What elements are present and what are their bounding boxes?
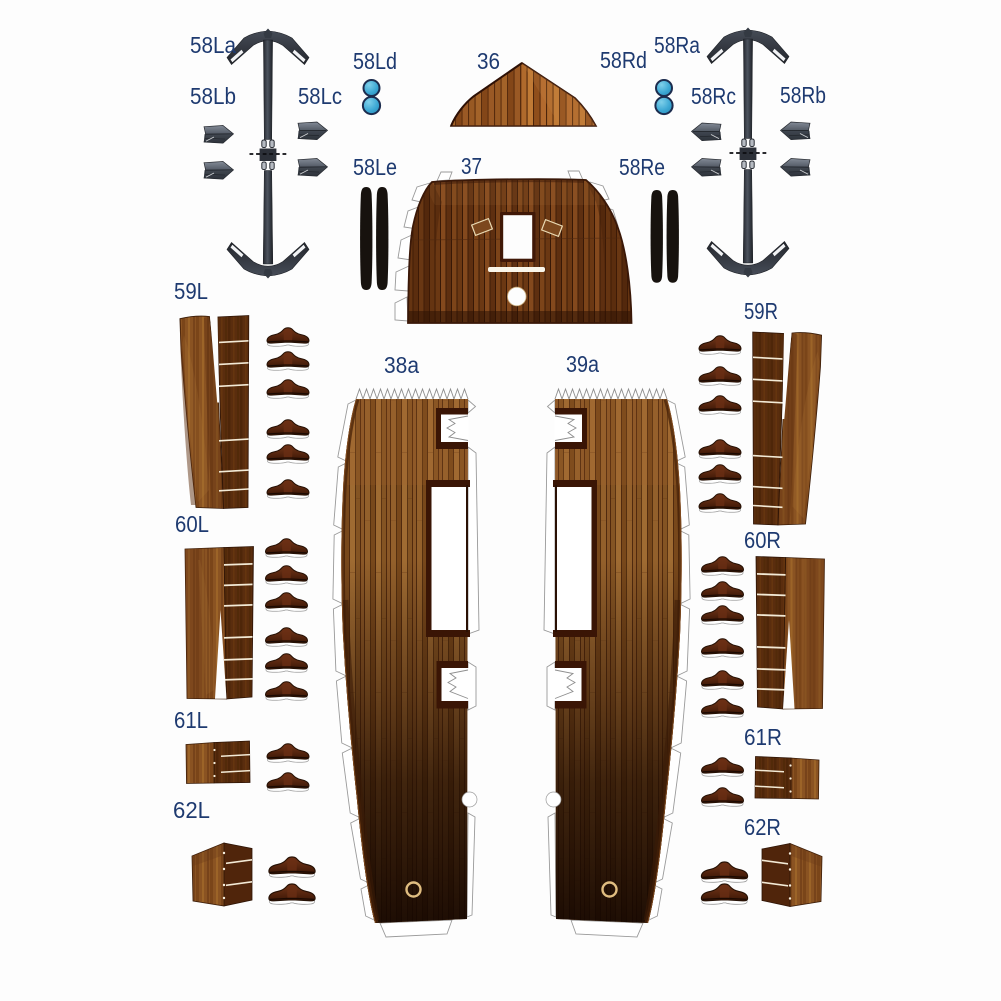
svg-text:58Rc: 58Rc [691,83,736,109]
svg-text:59L: 59L [174,278,208,304]
svg-text:61R: 61R [744,724,782,750]
svg-text:58Lb: 58Lb [190,83,236,109]
svg-text:60L: 60L [175,511,209,537]
svg-text:58Lc: 58Lc [298,83,342,109]
svg-text:62L: 62L [173,797,210,823]
svg-text:39a: 39a [566,351,600,377]
svg-text:58Rd: 58Rd [600,47,647,73]
svg-text:58Re: 58Re [619,154,665,180]
svg-text:58Ld: 58Ld [353,48,397,74]
svg-text:58Le: 58Le [353,154,397,180]
svg-text:58Rb: 58Rb [780,82,826,108]
svg-text:59R: 59R [744,298,778,324]
svg-text:58Ra: 58Ra [654,32,701,58]
svg-text:58La: 58La [190,32,237,58]
svg-text:38a: 38a [384,352,420,378]
svg-text:36: 36 [477,48,500,74]
svg-text:60R: 60R [744,527,781,553]
svg-text:61L: 61L [174,707,208,733]
svg-text:37: 37 [461,153,482,179]
svg-text:62R: 62R [744,814,781,840]
